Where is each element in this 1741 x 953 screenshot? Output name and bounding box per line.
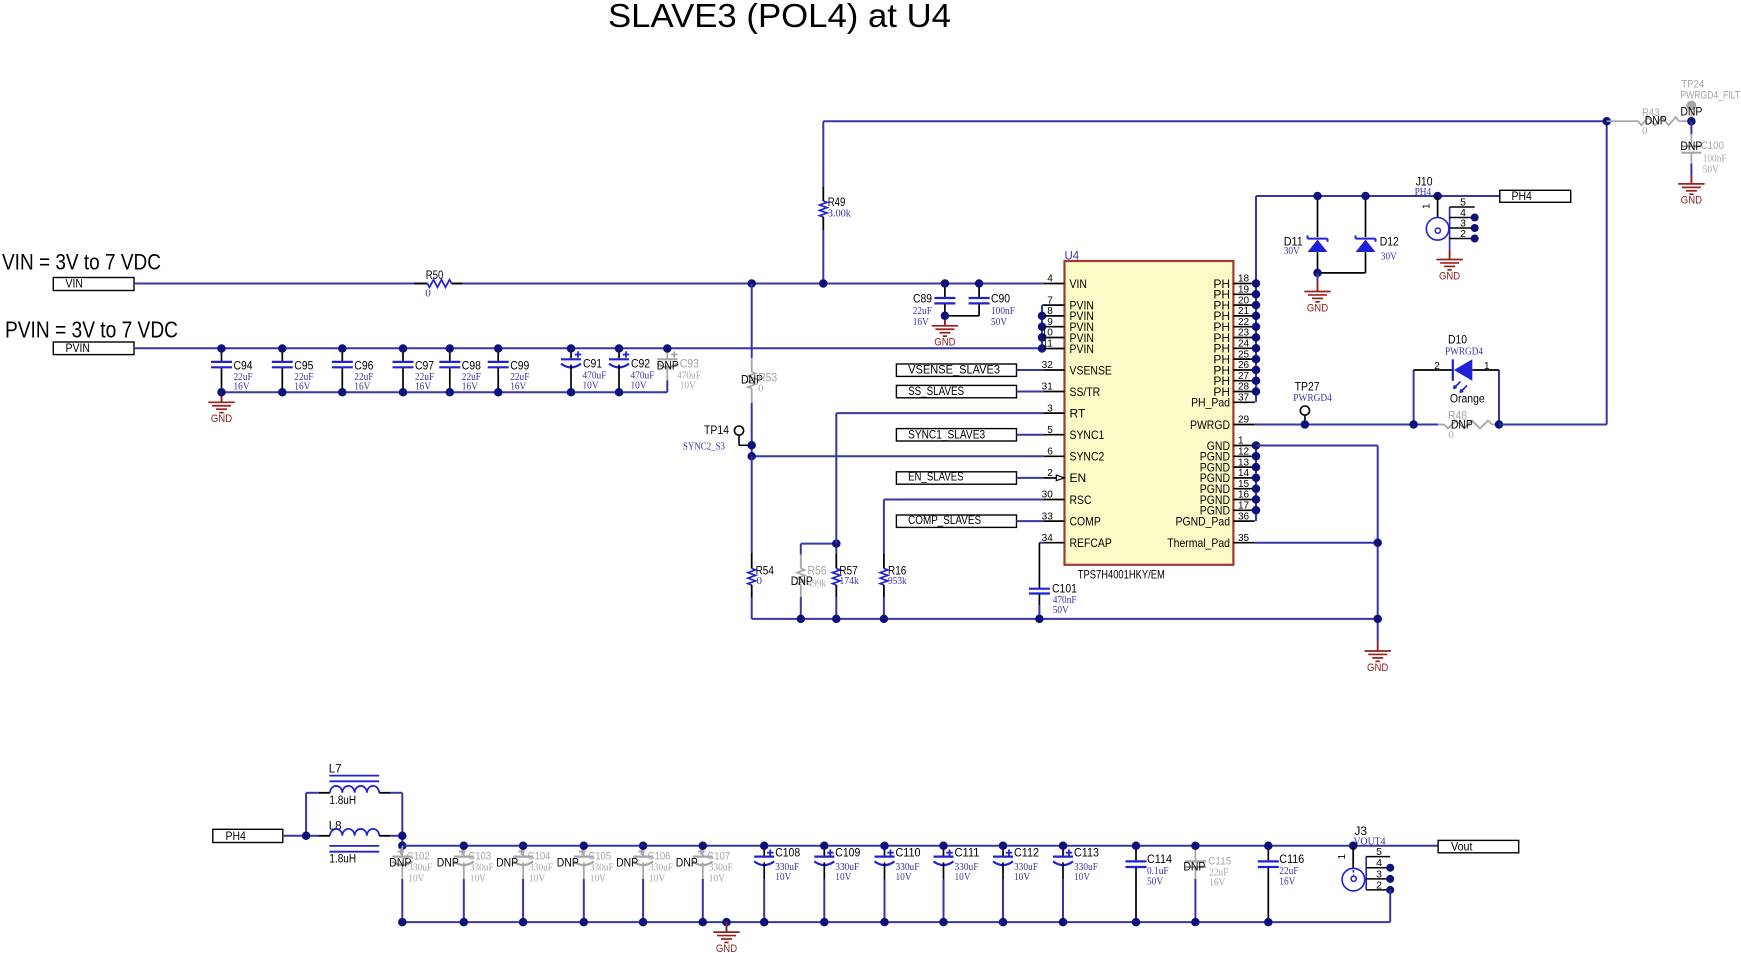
svg-text:Thermal_Pad: Thermal_Pad [1167,536,1230,550]
svg-text:SS_SLAVES: SS_SLAVES [908,384,964,398]
svg-text:REFCAP: REFCAP [1070,536,1112,550]
svg-text:27: 27 [1238,371,1250,382]
svg-text:DNP: DNP [676,856,698,870]
svg-text:11: 11 [1042,339,1053,350]
svg-text:1.8uH: 1.8uH [329,795,356,807]
svg-text:1: 1 [1422,203,1433,209]
svg-text:16V: 16V [913,316,929,328]
svg-text:30: 30 [1042,490,1054,501]
svg-text:VIN: VIN [66,277,83,291]
svg-text:1.8uH: 1.8uH [329,854,356,866]
svg-text:DNP: DNP [657,358,679,372]
svg-text:28: 28 [1238,382,1250,393]
svg-text:16V: 16V [1209,877,1225,889]
svg-text:15: 15 [1238,479,1250,490]
svg-text:1: 1 [1484,361,1490,372]
svg-text:13: 13 [1238,457,1250,468]
svg-text:16V: 16V [354,381,370,393]
svg-text:DNP: DNP [616,856,638,870]
svg-text:0: 0 [758,382,764,394]
svg-text:C90: C90 [991,292,1010,306]
svg-text:C108: C108 [775,846,800,860]
svg-text:10V: 10V [1074,871,1090,883]
svg-text:SS/TR: SS/TR [1070,385,1101,399]
svg-text:50V: 50V [1147,875,1163,887]
svg-text:PVIN = 3V to 7 VDC: PVIN = 3V to 7 VDC [5,317,178,343]
svg-text:VSENSE_SLAVE3: VSENSE_SLAVE3 [908,363,1000,377]
svg-text:26: 26 [1238,360,1250,371]
svg-text:1: 1 [1337,854,1348,860]
svg-text:PH4: PH4 [1415,186,1432,198]
svg-text:24: 24 [1238,339,1250,350]
svg-text:10: 10 [1042,328,1054,339]
svg-text:37: 37 [1238,393,1250,404]
svg-text:GND: GND [1307,302,1328,314]
svg-text:EN_SLAVES: EN_SLAVES [908,469,964,483]
svg-text:L7: L7 [329,764,342,776]
svg-text:GND: GND [716,943,737,953]
svg-text:C89: C89 [913,292,932,306]
svg-text:2: 2 [1047,468,1053,479]
svg-text:10V: 10V [583,380,599,392]
svg-text:C91: C91 [583,357,602,371]
svg-text:PWRGD4: PWRGD4 [1293,392,1332,404]
svg-text:C109: C109 [835,846,860,860]
svg-text:6: 6 [1047,447,1053,458]
svg-text:DNP: DNP [496,856,518,870]
svg-text:17: 17 [1238,501,1250,512]
svg-text:GND: GND [211,413,232,425]
svg-text:2: 2 [1434,361,1440,372]
svg-text:C110: C110 [896,846,921,860]
svg-text:10V: 10V [649,873,665,885]
svg-text:C92: C92 [631,357,650,371]
svg-text:10V: 10V [775,871,791,883]
svg-text:10V: 10V [1014,871,1030,883]
svg-text:50V: 50V [1703,163,1719,175]
svg-text:2: 2 [1460,228,1466,240]
svg-text:2: 2 [1376,879,1382,891]
svg-text:9: 9 [1047,317,1053,328]
svg-text:14: 14 [1238,468,1250,479]
svg-text:16V: 16V [462,381,478,393]
svg-text:SLAVE3 (POL4) at U4: SLAVE3 (POL4) at U4 [608,0,951,35]
svg-text:PWRGD4_FILT: PWRGD4_FILT [1680,89,1740,101]
svg-text:10V: 10V [631,380,647,392]
svg-text:16V: 16V [415,381,431,393]
svg-text:8: 8 [1047,306,1053,317]
svg-text:34: 34 [1042,533,1054,544]
svg-text:GND: GND [1367,662,1388,674]
svg-text:23: 23 [1238,328,1250,339]
svg-text:499k: 499k [808,578,827,590]
svg-text:RSC: RSC [1070,493,1092,507]
svg-text:PH_Pad: PH_Pad [1191,396,1230,410]
svg-text:10V: 10V [896,871,912,883]
svg-text:0: 0 [425,288,431,300]
svg-text:C113: C113 [1074,846,1099,860]
svg-text:PWRGD4: PWRGD4 [1445,345,1483,357]
svg-text:DNP: DNP [1183,860,1205,874]
svg-text:RT: RT [1070,406,1086,420]
svg-text:GND: GND [1439,270,1460,282]
svg-text:DNP: DNP [1451,417,1473,431]
svg-text:10V: 10V [955,871,971,883]
svg-text:TPS7H4001HKY/EM: TPS7H4001HKY/EM [1078,567,1165,581]
svg-text:19: 19 [1238,285,1250,296]
svg-text:30V: 30V [1284,245,1300,257]
svg-text:10V: 10V [835,871,851,883]
svg-text:3: 3 [1047,403,1053,414]
svg-text:C100: C100 [1701,140,1724,152]
svg-text:DNP: DNP [1645,113,1667,127]
svg-text:VIN: VIN [1070,277,1087,291]
svg-text:EN: EN [1070,471,1087,485]
svg-text:Vout: Vout [1451,840,1473,854]
svg-text:10V: 10V [408,873,424,885]
svg-text:16: 16 [1238,490,1250,501]
svg-text:29: 29 [1238,415,1250,426]
svg-text:COMP: COMP [1070,514,1101,528]
svg-text:16V: 16V [1279,875,1295,887]
svg-text:C116: C116 [1279,852,1304,866]
svg-text:C112: C112 [1014,846,1039,860]
svg-text:10V: 10V [470,873,486,885]
svg-text:PVIN: PVIN [1070,342,1094,356]
svg-text:30V: 30V [1381,251,1397,263]
svg-text:Orange: Orange [1450,391,1485,405]
svg-text:16V: 16V [294,381,310,393]
svg-text:32: 32 [1042,360,1054,371]
svg-text:C114: C114 [1147,852,1172,866]
svg-text:GND: GND [934,337,955,349]
svg-text:VIN = 3V to 7 VDC: VIN = 3V to 7 VDC [2,250,161,275]
svg-text:10V: 10V [680,380,696,392]
svg-text:50V: 50V [991,316,1007,328]
svg-text:25: 25 [1238,349,1250,360]
svg-text:GND: GND [1681,195,1702,207]
svg-text:953k: 953k [888,575,907,587]
svg-text:0: 0 [757,575,763,587]
svg-text:DNP: DNP [557,856,579,870]
svg-text:PH4: PH4 [1512,189,1533,203]
svg-text:PH4: PH4 [226,829,247,843]
svg-text:DNP: DNP [1680,139,1702,153]
svg-text:COMP_SLAVES: COMP_SLAVES [908,513,981,527]
svg-text:0: 0 [1448,429,1454,441]
svg-text:SYNC2_S3: SYNC2_S3 [683,441,725,453]
svg-text:TP14: TP14 [704,423,729,437]
svg-text:18: 18 [1238,274,1250,285]
svg-text:10V: 10V [709,873,725,885]
svg-text:36: 36 [1238,511,1250,522]
svg-text:22: 22 [1238,317,1250,328]
svg-text:SYNC1_SLAVE3: SYNC1_SLAVE3 [908,428,985,442]
svg-text:U4: U4 [1065,251,1080,263]
svg-text:10V: 10V [590,873,606,885]
svg-text:31: 31 [1042,382,1054,393]
svg-text:VSENSE: VSENSE [1070,363,1112,377]
svg-text:1: 1 [1238,436,1244,447]
svg-text:C111: C111 [955,846,980,860]
svg-text:DNP: DNP [1680,104,1702,118]
svg-text:21: 21 [1238,306,1250,317]
svg-text:PVIN: PVIN [66,341,90,355]
svg-text:174k: 174k [839,575,859,587]
svg-text:5: 5 [1047,425,1053,436]
svg-text:PGND_Pad: PGND_Pad [1176,514,1231,528]
svg-text:7: 7 [1047,295,1053,306]
svg-text:0: 0 [1642,125,1648,137]
svg-text:10V: 10V [529,873,545,885]
svg-text:50V: 50V [1053,604,1069,616]
svg-text:D12: D12 [1380,234,1399,248]
svg-text:C93: C93 [680,357,699,371]
svg-text:4: 4 [1047,274,1053,285]
svg-text:SYNC1: SYNC1 [1070,428,1105,442]
svg-text:PWRGD: PWRGD [1190,418,1230,432]
svg-text:4: 4 [1376,857,1382,869]
svg-text:20: 20 [1238,295,1250,306]
svg-text:16V: 16V [510,381,526,393]
svg-text:R50: R50 [426,270,444,282]
svg-text:3.00k: 3.00k [828,208,852,220]
svg-text:33: 33 [1042,511,1054,522]
svg-text:DNP: DNP [437,856,459,870]
svg-text:35: 35 [1238,533,1250,544]
svg-text:SYNC2: SYNC2 [1070,450,1105,464]
svg-text:12: 12 [1238,447,1250,458]
svg-text:16V: 16V [234,381,250,393]
